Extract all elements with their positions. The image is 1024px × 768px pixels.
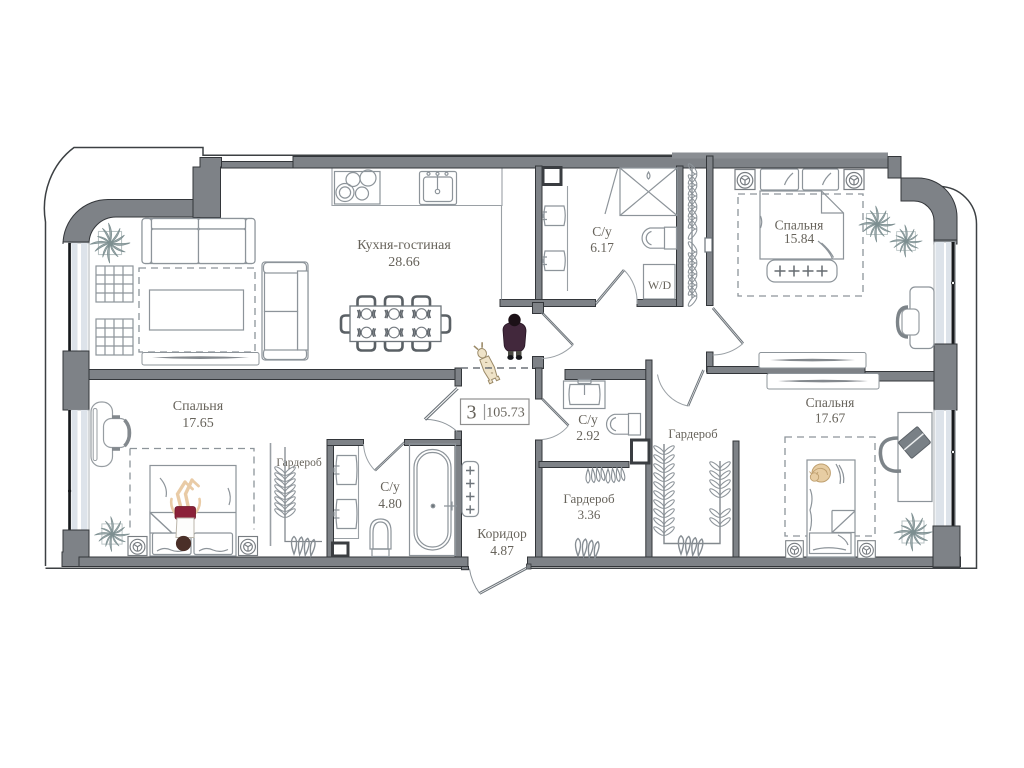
svg-text:Коридор: Коридор [477, 526, 527, 541]
svg-text:28.66: 28.66 [388, 255, 420, 270]
svg-text:Гардероб: Гардероб [276, 457, 322, 469]
svg-text:Гардероб: Гардероб [563, 491, 615, 506]
svg-text:С/у: С/у [578, 412, 598, 427]
svg-text:3: 3 [467, 402, 477, 424]
svg-text:4.87: 4.87 [490, 543, 514, 558]
svg-text:4.80: 4.80 [378, 496, 402, 511]
svg-text:17.65: 17.65 [182, 416, 214, 431]
svg-text:С/у: С/у [380, 479, 400, 494]
svg-text:17.67: 17.67 [815, 411, 846, 426]
svg-text:3.36: 3.36 [578, 507, 601, 522]
svg-text:W/D: W/D [648, 278, 672, 292]
svg-text:2.92: 2.92 [576, 428, 600, 443]
svg-text:Спальня: Спальня [173, 399, 224, 414]
svg-text:С/у: С/у [592, 224, 612, 239]
svg-text:Гардероб: Гардероб [668, 427, 717, 441]
svg-text:15.84: 15.84 [784, 231, 815, 246]
svg-text:105.73: 105.73 [486, 406, 525, 421]
svg-text:6.17: 6.17 [590, 240, 614, 255]
svg-text:Кухня-гостиная: Кухня-гостиная [357, 238, 451, 253]
svg-text:Спальня: Спальня [806, 395, 855, 410]
